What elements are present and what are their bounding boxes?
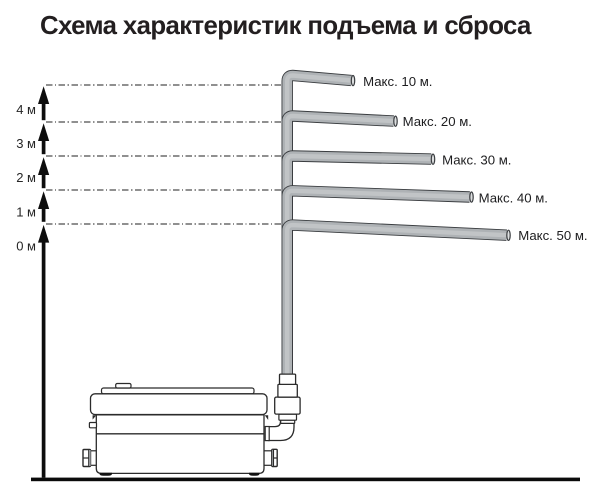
svg-text:Макс. 10 м.: Макс. 10 м. xyxy=(363,74,432,89)
svg-text:1 м: 1 м xyxy=(16,204,36,219)
svg-text:2 м: 2 м xyxy=(16,170,36,185)
svg-text:4 м: 4 м xyxy=(16,102,36,117)
svg-text:Макс. 50 м.: Макс. 50 м. xyxy=(518,228,587,243)
svg-text:Макс. 40 м.: Макс. 40 м. xyxy=(479,190,548,205)
svg-text:0 м: 0 м xyxy=(16,238,36,253)
svg-text:Макс. 30 м.: Макс. 30 м. xyxy=(442,153,511,168)
svg-text:3 м: 3 м xyxy=(16,136,36,151)
svg-text:Схема характеристик подъема и: Схема характеристик подъема и сброса xyxy=(40,12,532,40)
svg-text:Макс. 20 м.: Макс. 20 м. xyxy=(403,114,472,129)
